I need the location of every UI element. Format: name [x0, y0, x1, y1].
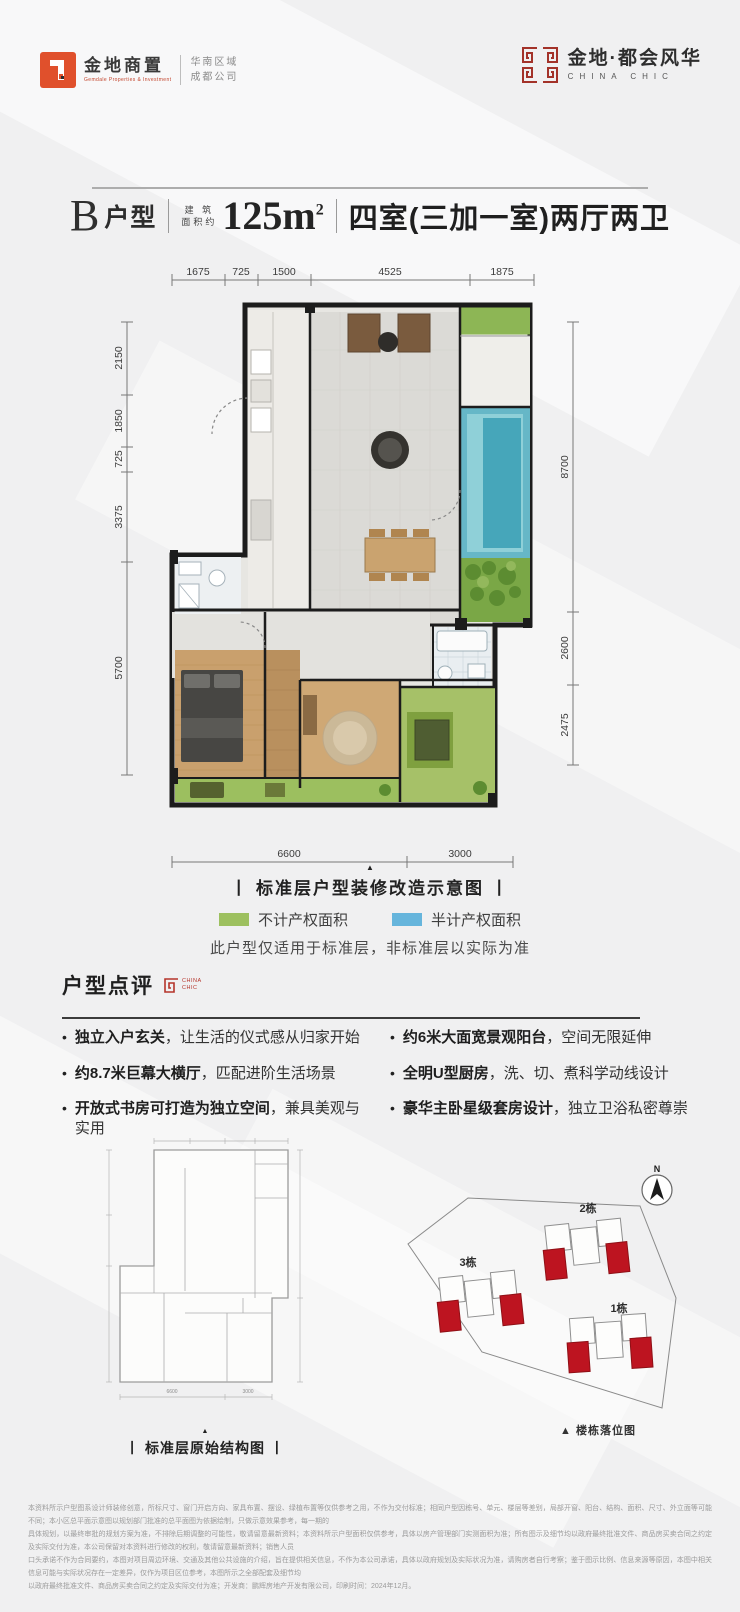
bullet-dot: •: [62, 1099, 67, 1138]
dimension-right-labels: 8700 2600 2475: [559, 455, 571, 737]
svg-text:2600: 2600: [559, 636, 571, 660]
list-item: •约8.7米巨幕大横厅，匹配进阶生活场景: [62, 1064, 372, 1084]
balcony-bottom-green: [175, 778, 400, 802]
disclaimer-line: 以政府最终批准文件、商品房买卖合同之约定及实际交付为准；开发商：鹏辉房地产开发有…: [28, 1580, 712, 1593]
divider: [336, 199, 337, 233]
area-value: 125m2: [222, 196, 323, 236]
unit-letter: B: [70, 194, 99, 238]
legend-item-blue: 半计产权面积: [392, 909, 521, 930]
bullet-bold: 约6米大面宽景观阳台: [403, 1029, 546, 1046]
dimension-left-labels: 2150 1850 725 3375 5700: [115, 346, 125, 680]
legend-label: 不计产权面积: [258, 909, 348, 930]
unit-suffix: 户型: [104, 198, 156, 234]
gemdale-logo: 金地商置 Gemdale Properties & Investment 华南区…: [40, 52, 238, 88]
plan-legend: 不计产权面积 半计产权面积: [0, 909, 740, 930]
disclaimer-line: 本资料所示户型图系设计师装修创意，所标尺寸、窗门开启方向、家具布置、摆设、绿植布…: [28, 1502, 712, 1528]
disclaimer-line: 口头承诺不作为合同要约，本图对项目周边环境、交通及其他公共设施的介绍，旨在提供相…: [28, 1554, 712, 1580]
disclaimer-line: 具体规划，以最终审批的规划方案为准，不排除后期调整的可能性，敬请留意最新资料；本…: [28, 1528, 712, 1554]
bullet-rest: ，洗、切、煮科学动线设计: [489, 1065, 669, 1082]
region-line1: 华南区域: [190, 55, 238, 70]
review-rule: [62, 1017, 640, 1019]
svg-text:3000: 3000: [448, 848, 472, 860]
divider: [180, 55, 181, 85]
review-bullets-right: •约6米大面宽景观阳台，空间无限延伸 •全明U型厨房，洗、切、煮科学动线设计 •…: [390, 1028, 710, 1135]
dimension-right: [567, 322, 579, 765]
planting-right: [460, 558, 530, 622]
site-plan-svg: 2栋 3栋 1栋 N: [395, 1140, 725, 1420]
bullet-dot: •: [390, 1099, 395, 1119]
review-header: 户型点评 CHINA CHIC: [62, 970, 202, 1000]
closet-strip: [265, 650, 300, 788]
dimension-left: [121, 322, 133, 775]
gemdale-logo-icon: [40, 52, 76, 88]
bullet-bold: 豪华主卧星级套房设计: [403, 1100, 553, 1117]
plan-caption: 丨 标准层户型装修改造示意图 丨: [0, 874, 740, 899]
area-number: 125m: [222, 193, 315, 238]
china-chic-logo: 金地·都会风华 CHINA CHIC: [521, 46, 702, 84]
review-brand: CHINA CHIC: [164, 978, 202, 993]
compass-icon: N: [642, 1164, 672, 1205]
room-kitchen: [248, 310, 310, 610]
region-line2: 成都公司: [190, 70, 238, 85]
svg-text:725: 725: [115, 450, 125, 468]
list-item: •独立入户玄关，让生活的仪式感从归家开始: [62, 1028, 372, 1048]
building-3: [435, 1270, 524, 1332]
structure-caption-marker: ▲: [95, 1428, 315, 1435]
site-plan: 2栋 3栋 1栋 N: [395, 1140, 725, 1420]
svg-text:5700: 5700: [115, 656, 125, 680]
review-brand-line1: CHINA: [182, 978, 202, 985]
bedroom-middle: [300, 680, 400, 788]
svg-text:N: N: [654, 1164, 661, 1174]
bullet-dot: •: [390, 1028, 395, 1048]
bullet-dot: •: [390, 1064, 395, 1084]
dimension-top: [172, 274, 534, 286]
structure-dim-labels: 6600 3000: [166, 1389, 253, 1395]
bullet-bold: 开放式书房可打造为独立空间: [75, 1100, 270, 1117]
bullet-rest: ，独立卫浴私密尊崇: [553, 1100, 688, 1117]
list-item: •豪华主卧星级套房设计，独立卫浴私密尊崇: [390, 1099, 710, 1119]
structure-diagram: 6600 3000: [95, 1135, 315, 1427]
svg-text:3000: 3000: [242, 1389, 253, 1395]
bullet-rest: ，让生活的仪式感从归家开始: [165, 1029, 360, 1046]
structure-caption: 丨 标准层原始结构图 丨: [95, 1438, 315, 1458]
svg-text:1500: 1500: [272, 266, 296, 278]
svg-text:1875: 1875: [490, 266, 514, 278]
bedroom-master: [175, 650, 265, 788]
bullet-rest: ，空间无限延伸: [546, 1029, 651, 1046]
bathroom-left: [175, 557, 241, 614]
disclaimer: 本资料所示户型图系设计师装修创意，所标尺寸、窗门开启方向、家具布置、摆设、绿植布…: [28, 1502, 712, 1593]
list-item: •约6米大面宽景观阳台，空间无限延伸: [390, 1028, 710, 1048]
legend-label: 半计产权面积: [431, 909, 521, 930]
list-item: •全明U型厨房，洗、切、煮科学动线设计: [390, 1064, 710, 1084]
bullet-dot: •: [62, 1028, 67, 1048]
poster-canvas: 金地商置 Gemdale Properties & Investment 华南区…: [0, 0, 740, 1612]
building-2: [541, 1218, 630, 1280]
china-chic-name-en: CHINA CHIC: [568, 72, 702, 81]
area-label-line2: 面积约: [181, 216, 217, 228]
balcony-green-top-right: [460, 308, 530, 407]
svg-text:725: 725: [232, 266, 250, 278]
list-item: •开放式书房可打造为独立空间，兼具美观与实用: [62, 1099, 372, 1138]
bullet-bold: 全明U型厨房: [403, 1065, 489, 1082]
china-chic-name: 金地·都会风华: [568, 49, 702, 68]
plan-note: 此户型仅适用于标准层，非标准层以实际为准: [0, 937, 740, 958]
dimension-bottom-labels: 6600 3000: [277, 848, 472, 860]
study-green: [400, 687, 495, 802]
dimension-top-labels: 1675 725 1500 4525 1875: [186, 266, 514, 278]
site-plan-caption: ▲ 楼栋落位图: [560, 1422, 720, 1438]
gemdale-name-en: Gemdale Properties & Investment: [84, 77, 171, 83]
bullet-rest: ，匹配进阶生活场景: [201, 1065, 336, 1082]
structure-diagram-svg: 6600 3000: [95, 1135, 315, 1427]
dining-table: [365, 529, 435, 581]
svg-text:6600: 6600: [277, 848, 301, 860]
svg-text:3栋: 3栋: [459, 1255, 476, 1269]
review-title: 户型点评: [62, 970, 154, 1000]
legend-item-green: 不计产权面积: [219, 909, 348, 930]
green-swatch: [219, 913, 249, 926]
unit-title: B 户型 建 筑 面积约 125m2 四室(三加一室)两厅两卫: [0, 194, 740, 238]
bullet-bold: 独立入户玄关: [75, 1029, 165, 1046]
gemdale-name: 金地商置: [84, 57, 171, 74]
svg-text:6600: 6600: [166, 1389, 177, 1395]
plan-caption-marker: ▲: [0, 863, 740, 872]
floor-plan: 1675 725 1500 4525 1875 2150 1850 725 33…: [115, 250, 595, 872]
svg-text:2150: 2150: [115, 346, 125, 370]
area-sup: 2: [316, 202, 324, 219]
svg-text:4525: 4525: [378, 266, 402, 278]
area-label: 建 筑 面积约: [181, 204, 217, 228]
building-1: [565, 1313, 653, 1373]
bullet-dot: •: [62, 1064, 67, 1084]
svg-text:1栋: 1栋: [610, 1301, 627, 1315]
svg-text:2栋: 2栋: [579, 1201, 596, 1215]
china-chic-ornament-icon: [521, 46, 559, 84]
area-label-line1: 建 筑: [181, 204, 217, 216]
svg-text:1850: 1850: [115, 409, 125, 433]
china-chic-mini-icon: [164, 978, 179, 993]
rooms-text: 四室(三加一室)两厅两卫: [349, 195, 670, 237]
bullet-bold: 约8.7米巨幕大横厅: [75, 1065, 201, 1082]
svg-text:2475: 2475: [559, 713, 571, 737]
review-brand-text: CHINA CHIC: [182, 978, 202, 992]
svg-text:1675: 1675: [186, 266, 210, 278]
divider: [168, 199, 169, 233]
balcony-pool: [460, 408, 530, 558]
floor-plan-svg: 1675 725 1500 4525 1875 2150 1850 725 33…: [115, 250, 595, 872]
title-top-rule: [92, 187, 648, 189]
blue-swatch: [392, 913, 422, 926]
region-lines: 华南区域 成都公司: [190, 55, 238, 85]
svg-text:3375: 3375: [115, 505, 125, 529]
bathroom-right: [433, 627, 491, 687]
svg-text:8700: 8700: [559, 455, 571, 479]
review-brand-line2: CHIC: [182, 985, 202, 992]
